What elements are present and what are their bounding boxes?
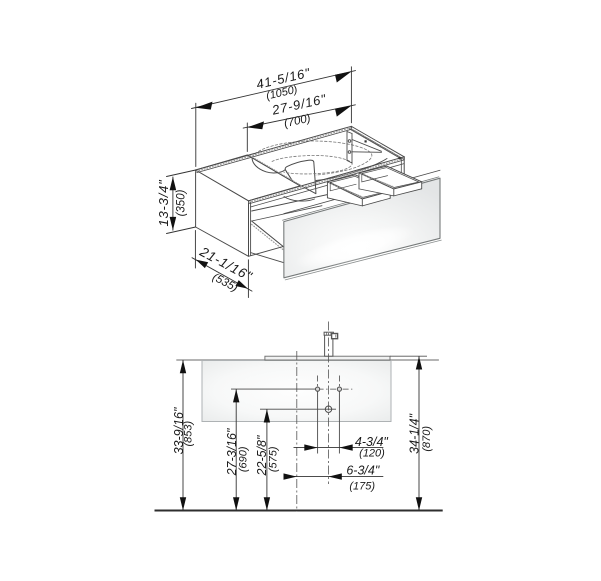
svg-text:(175): (175) (349, 480, 375, 492)
svg-text:(870): (870) (421, 426, 433, 452)
svg-text:(690): (690) (238, 446, 250, 472)
svg-text:(120): (120) (359, 447, 385, 459)
svg-text:13-3/4": 13-3/4" (156, 179, 171, 227)
svg-text:(853): (853) (183, 421, 195, 447)
svg-text:6-3/4": 6-3/4" (346, 464, 379, 478)
svg-text:34-1/4": 34-1/4" (408, 413, 422, 453)
svg-text:(700): (700) (283, 113, 312, 131)
svg-text:(350): (350) (176, 189, 188, 216)
svg-text:(575): (575) (267, 446, 279, 472)
